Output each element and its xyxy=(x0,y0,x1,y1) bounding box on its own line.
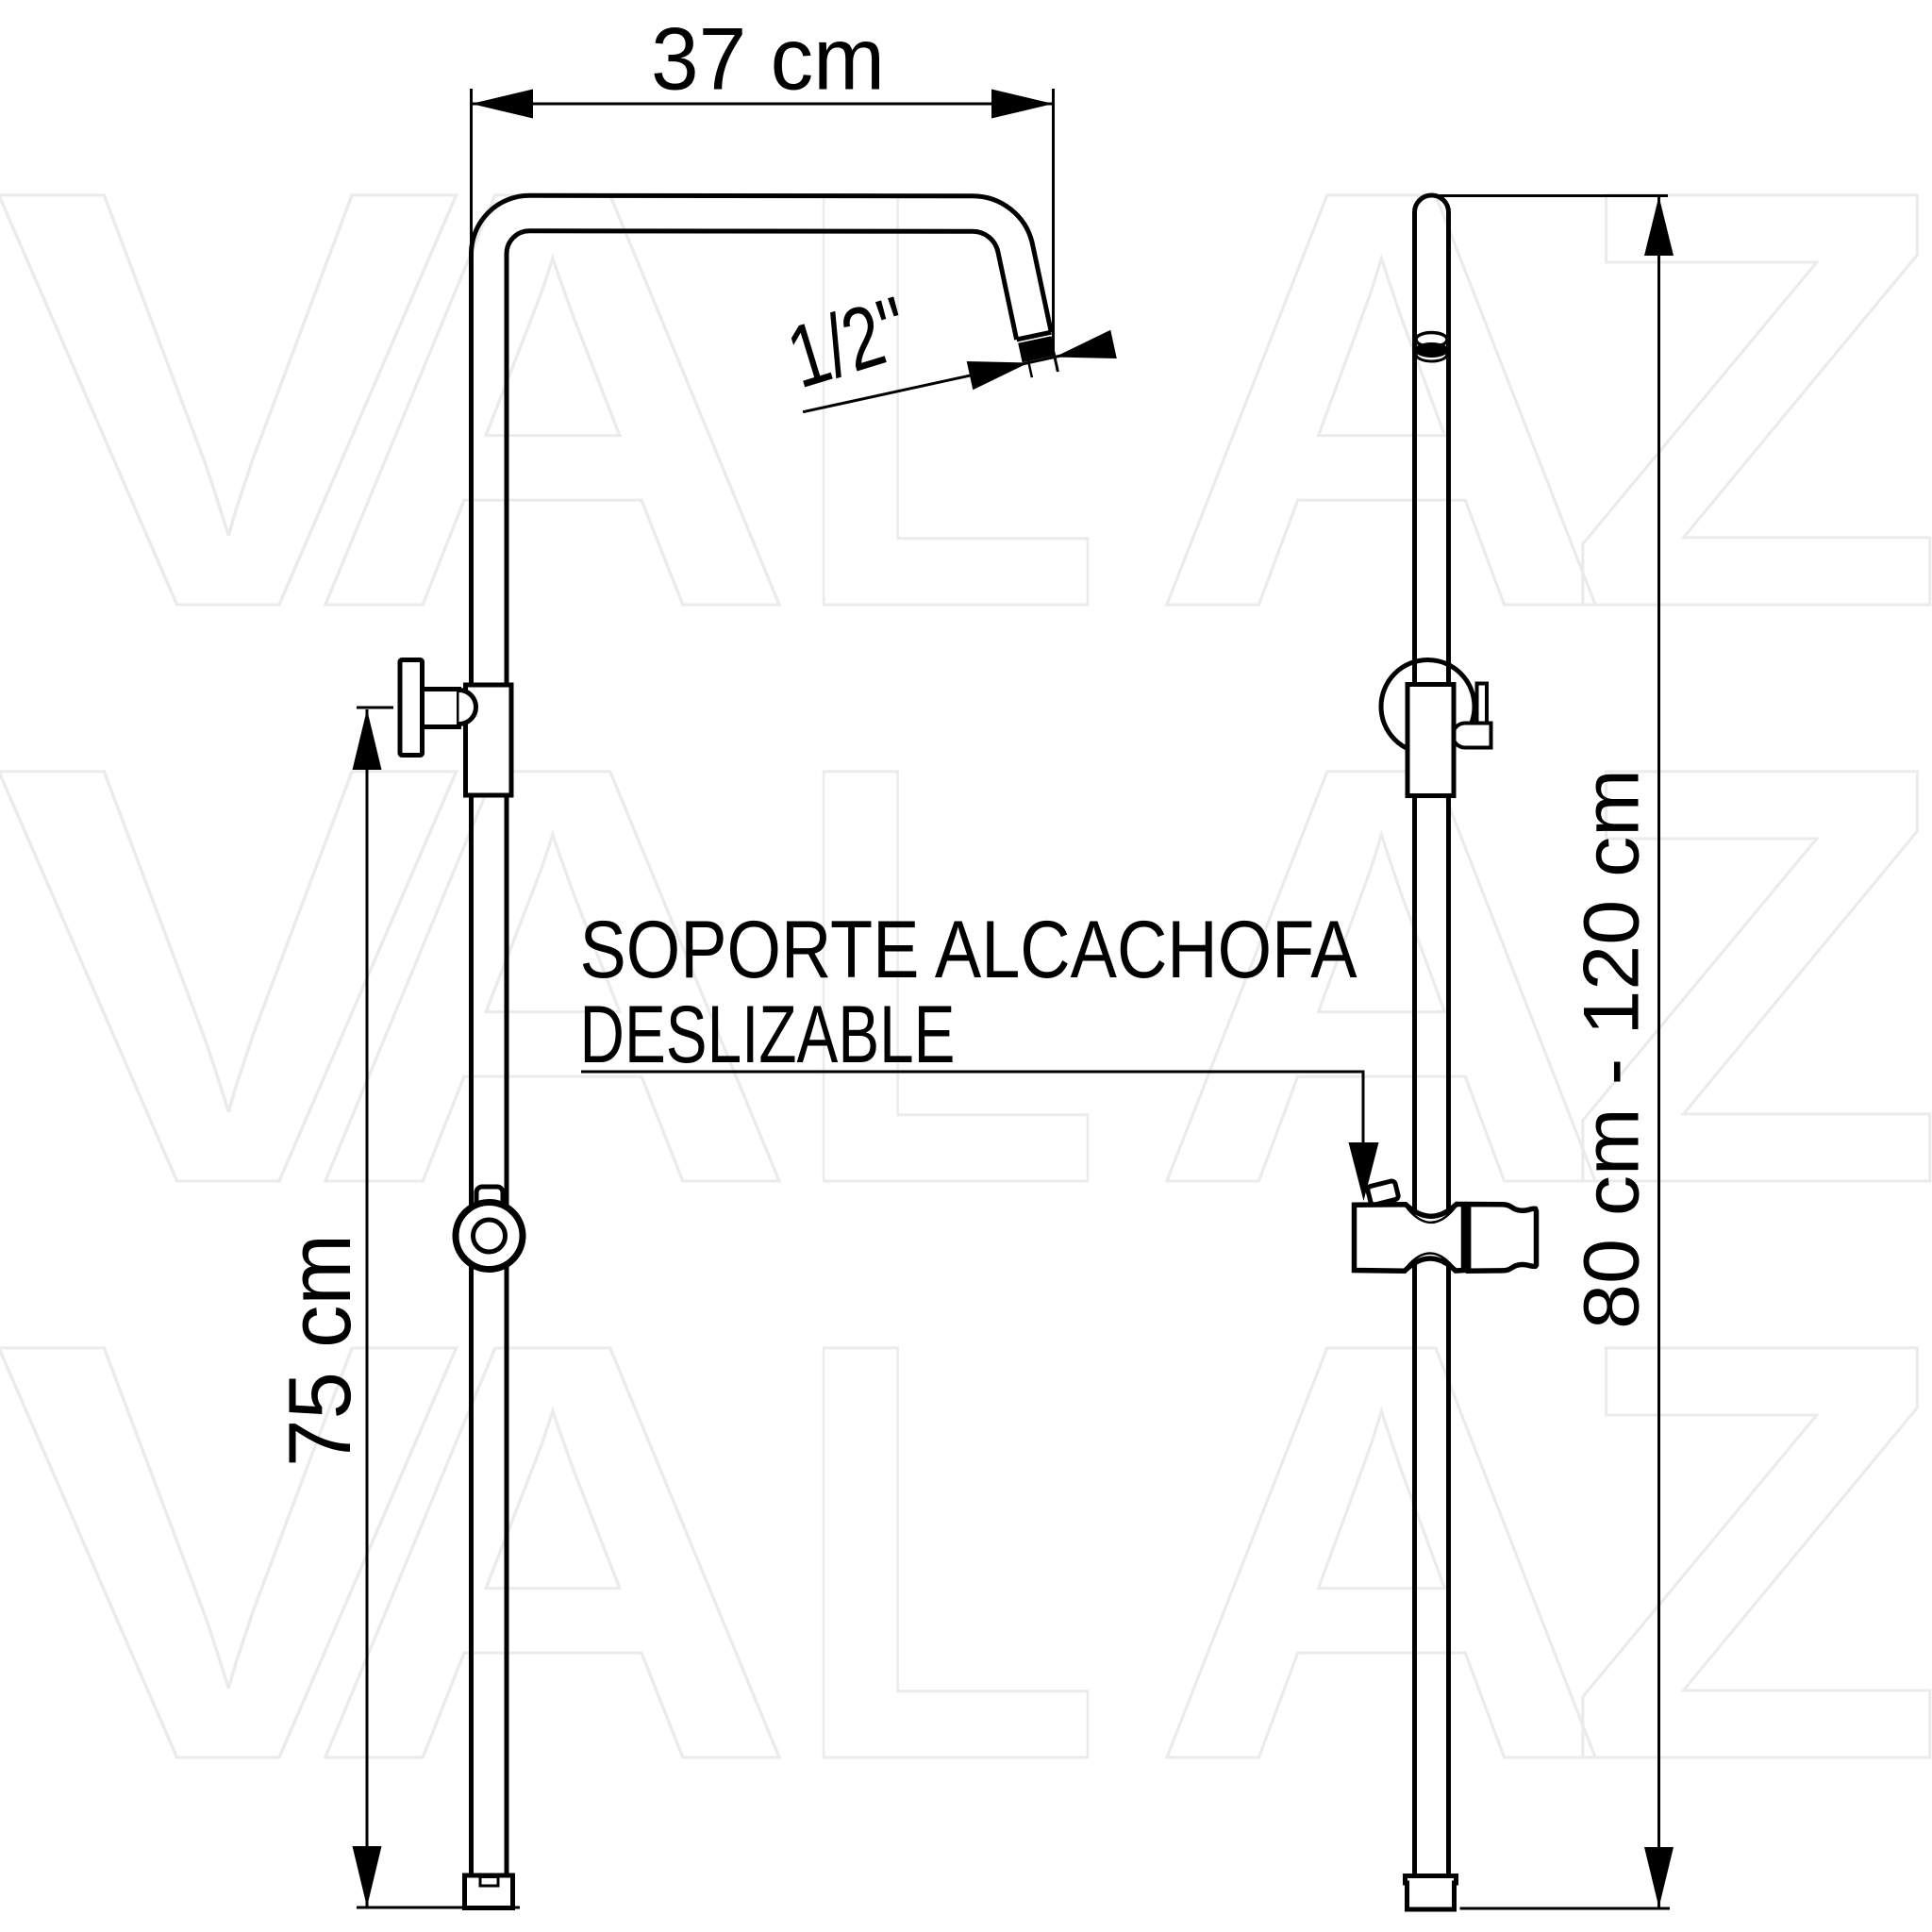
svg-text:A: A xyxy=(308,66,797,731)
svg-text:DESLIZABLE: DESLIZABLE xyxy=(580,990,956,1080)
svg-text:37 cm: 37 cm xyxy=(651,9,885,108)
svg-text:Z: Z xyxy=(1564,66,1932,731)
svg-text:SOPORTE ALCACHOFA: SOPORTE ALCACHOFA xyxy=(580,905,1358,995)
svg-text:L: L xyxy=(790,66,1104,731)
svg-text:75 cm: 75 cm xyxy=(270,1234,369,1467)
svg-text:A: A xyxy=(1151,1219,1612,1884)
svg-text:A: A xyxy=(1151,66,1612,731)
svg-text:A: A xyxy=(308,1219,797,1884)
svg-text:L: L xyxy=(790,1219,1104,1884)
svg-text:80 cm - 120 cm: 80 cm - 120 cm xyxy=(1567,769,1656,1329)
